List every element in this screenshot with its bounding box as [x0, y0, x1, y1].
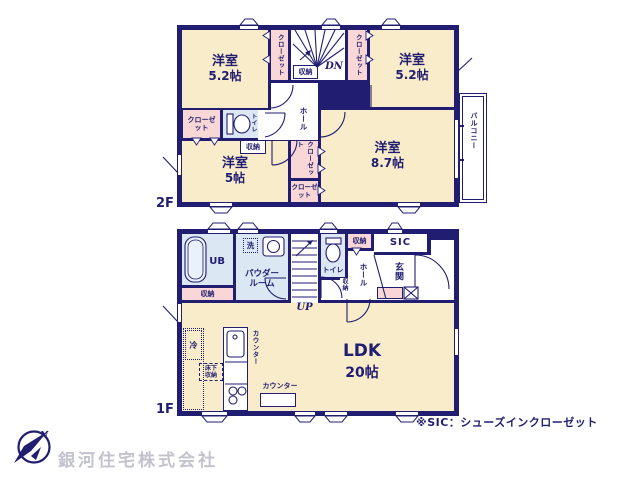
toilet-label: トイレ — [323, 266, 344, 274]
window-mark — [163, 157, 178, 173]
stairs-dn-label: DN — [322, 61, 346, 72]
storage-1f-top: 収納 — [348, 234, 371, 248]
window — [202, 411, 227, 416]
closet-2f-wall: クローゼット — [183, 110, 220, 138]
window — [398, 202, 420, 207]
ldk-label: LDK — [343, 341, 381, 361]
ldk-size: 20帖 — [345, 365, 378, 381]
room-label: 洋室 — [374, 142, 400, 157]
storage-under-ub: 収納 — [182, 288, 233, 300]
window — [210, 202, 232, 207]
storage-label: 収納 — [201, 290, 215, 298]
fridge-label: 冷 — [190, 340, 198, 351]
room-label: 洋室 — [399, 54, 425, 69]
balcony-label: バルコニー — [469, 112, 479, 190]
room-size: 8.7帖 — [371, 157, 404, 171]
balcony: バルコニー — [459, 93, 487, 203]
kitchen-counter-label: カウンター — [250, 330, 260, 382]
window — [177, 155, 182, 175]
window — [208, 229, 230, 234]
closet-label: クローゼット — [295, 141, 315, 178]
room-size: 5.2帖 — [208, 70, 241, 84]
window — [325, 411, 347, 416]
compass-n-label: N — [40, 431, 48, 441]
counter-low — [260, 393, 296, 407]
underfloor-storage: 床下収納 — [199, 363, 223, 381]
washer-space: 洗 — [243, 238, 258, 253]
room-label: 洋室 — [212, 55, 238, 70]
unit-bath: UB — [182, 234, 233, 285]
sic-note: ※SIC：シューズインクローゼット — [416, 414, 598, 430]
closet-2f-left: クローゼット — [271, 30, 288, 80]
stairs-up-label: UP — [289, 302, 320, 313]
closet-label: クローゼット — [187, 116, 217, 133]
window — [240, 25, 258, 30]
room-2f-west-tl: 洋室 5.2帖 — [182, 30, 268, 108]
closet-2f-right: クローゼット — [348, 30, 367, 80]
floor-1f: UB 収納 パウダールーム 洗 UP トイレ 収納 収納 SIC ホール 玄 — [177, 229, 459, 416]
ldk-label-block: LDK 20帖 — [317, 341, 407, 383]
storage-under-stairs: 収納 — [293, 65, 318, 79]
washer-label: 洗 — [247, 240, 255, 251]
storage-toilet-label: 収納 — [340, 278, 349, 300]
room-label: 洋室 — [222, 157, 248, 172]
room-2f-south-east: 洋室 8.7帖 — [321, 110, 454, 202]
shoe-cabinet — [377, 287, 403, 299]
window — [382, 25, 400, 30]
room-size: 5.2帖 — [395, 69, 428, 83]
toilet-label: トイレ — [249, 113, 256, 137]
floor-2f: 洋室 5.2帖 クローゼット 収納 DN クローゼット 洋室 5.2帖 ホール … — [177, 25, 459, 207]
sic-room: SIC — [374, 234, 427, 252]
floorplan-canvas: 洋室 5.2帖 クローゼット 収納 DN クローゼット 洋室 5.2帖 ホール … — [0, 0, 640, 480]
window — [322, 25, 340, 30]
hall-1f-label: ホール — [358, 263, 369, 301]
hall-2f — [271, 83, 318, 140]
room-size: 5帖 — [225, 172, 245, 186]
ub-label: UB — [209, 256, 225, 268]
window — [388, 229, 402, 234]
closet-label: クローゼット — [276, 34, 283, 76]
window — [396, 411, 418, 416]
window — [320, 229, 337, 234]
storage-label: 収納 — [299, 67, 313, 77]
floor-1f-label: 1F — [156, 402, 174, 417]
closet-label: クローゼット — [354, 34, 361, 76]
kitchen-unit — [223, 327, 248, 411]
hall-2f-corridor — [258, 110, 271, 140]
room-2f-south-west: 洋室 5帖 — [182, 141, 288, 202]
window-mark — [457, 58, 472, 72]
room-2f-east-tr: 洋室 5.2帖 — [370, 30, 454, 107]
closet-label: クローゼット — [291, 184, 318, 200]
toilet-2f: トイレ — [223, 110, 258, 138]
window — [454, 329, 459, 355]
company-name: 銀河住宅株式会社 — [58, 446, 218, 471]
floor-2f-label: 2F — [156, 196, 174, 211]
fridge-space: 冷 — [185, 330, 202, 360]
storage-2f-toilet: 収納 — [240, 140, 266, 154]
window — [295, 411, 315, 416]
stairs-1f — [291, 234, 318, 300]
closet-2f-mid2: クローゼット — [291, 181, 318, 202]
storage-label: 収納 — [246, 142, 260, 152]
underfloor-label: 床下収納 — [205, 365, 217, 379]
counter-low-label: カウンター — [258, 381, 302, 391]
closet-2f-mid: クローゼット — [291, 141, 318, 178]
porch-top — [431, 240, 454, 258]
window-mark — [163, 306, 178, 322]
sic-label: SIC — [390, 237, 411, 249]
window — [177, 304, 182, 322]
window — [238, 229, 258, 234]
toilet-1f: トイレ — [321, 234, 345, 277]
powder-label: パウダールーム — [245, 269, 279, 289]
storage-label: 収納 — [353, 237, 367, 245]
